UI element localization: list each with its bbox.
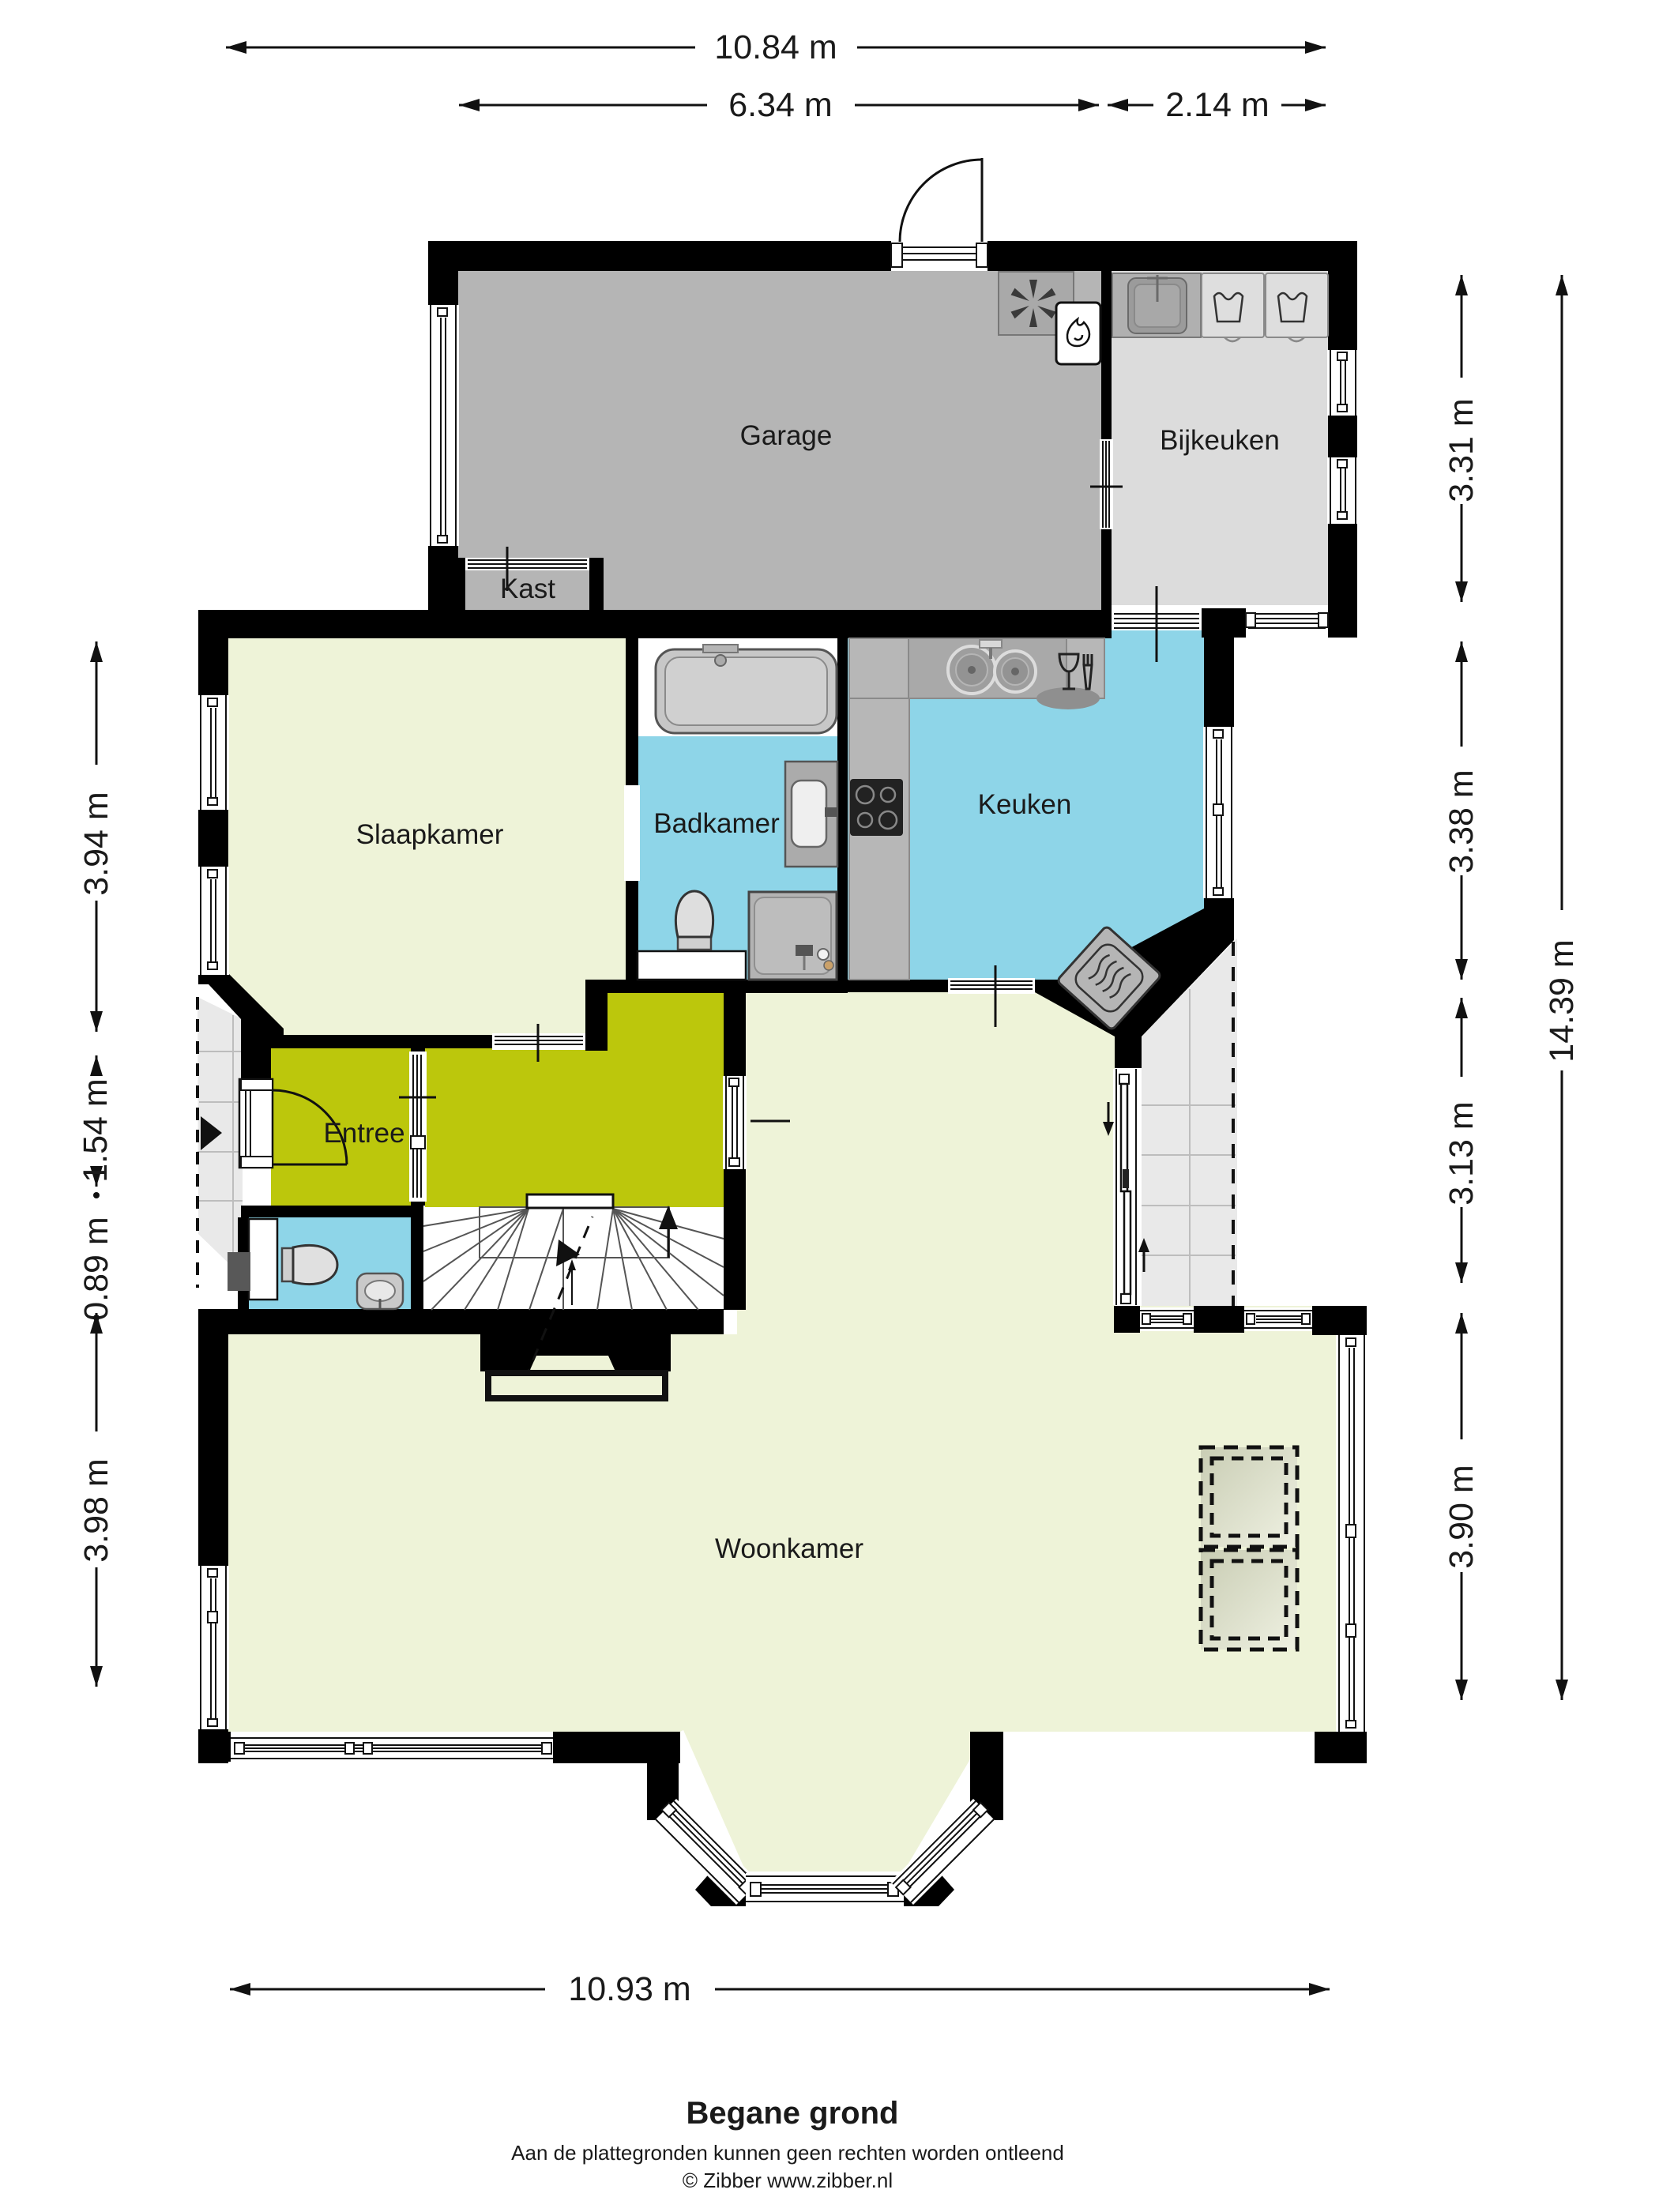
svg-text:© Zibber www.zibber.nl: © Zibber www.zibber.nl xyxy=(683,2169,893,2192)
svg-text:0.89 m: 0.89 m xyxy=(77,1217,115,1320)
svg-text:3.13 m: 3.13 m xyxy=(1443,1101,1480,1205)
svg-text:Entree: Entree xyxy=(323,1118,404,1149)
svg-text:6.34 m: 6.34 m xyxy=(728,86,832,124)
svg-text:Woonkamer: Woonkamer xyxy=(715,1533,863,1564)
svg-text:2.14 m: 2.14 m xyxy=(1165,86,1269,124)
svg-text:Garage: Garage xyxy=(740,420,833,451)
svg-text:14.39 m: 14.39 m xyxy=(1543,939,1581,1062)
svg-text:Keuken: Keuken xyxy=(978,789,1072,820)
svg-text:Badkamer: Badkamer xyxy=(653,808,780,839)
svg-text:3.94 m: 3.94 m xyxy=(77,792,115,895)
svg-text:3.31 m: 3.31 m xyxy=(1443,398,1480,502)
svg-text:10.84 m: 10.84 m xyxy=(714,28,837,66)
svg-text:Kast: Kast xyxy=(500,574,555,604)
svg-text:3.98 m: 3.98 m xyxy=(77,1458,115,1562)
svg-text:10.93 m: 10.93 m xyxy=(568,1970,690,2008)
svg-text:Aan de plattegronden kunnen ge: Aan de plattegronden kunnen geen rechten… xyxy=(511,2141,1064,2165)
svg-text:3.90 m: 3.90 m xyxy=(1443,1465,1480,1568)
svg-text:Bijkeuken: Bijkeuken xyxy=(1160,425,1280,456)
svg-text:1.54 m: 1.54 m xyxy=(77,1078,115,1182)
svg-text:Slaapkamer: Slaapkamer xyxy=(356,819,504,850)
svg-text:3.38 m: 3.38 m xyxy=(1443,769,1480,873)
svg-text:Begane grond: Begane grond xyxy=(687,2096,899,2131)
